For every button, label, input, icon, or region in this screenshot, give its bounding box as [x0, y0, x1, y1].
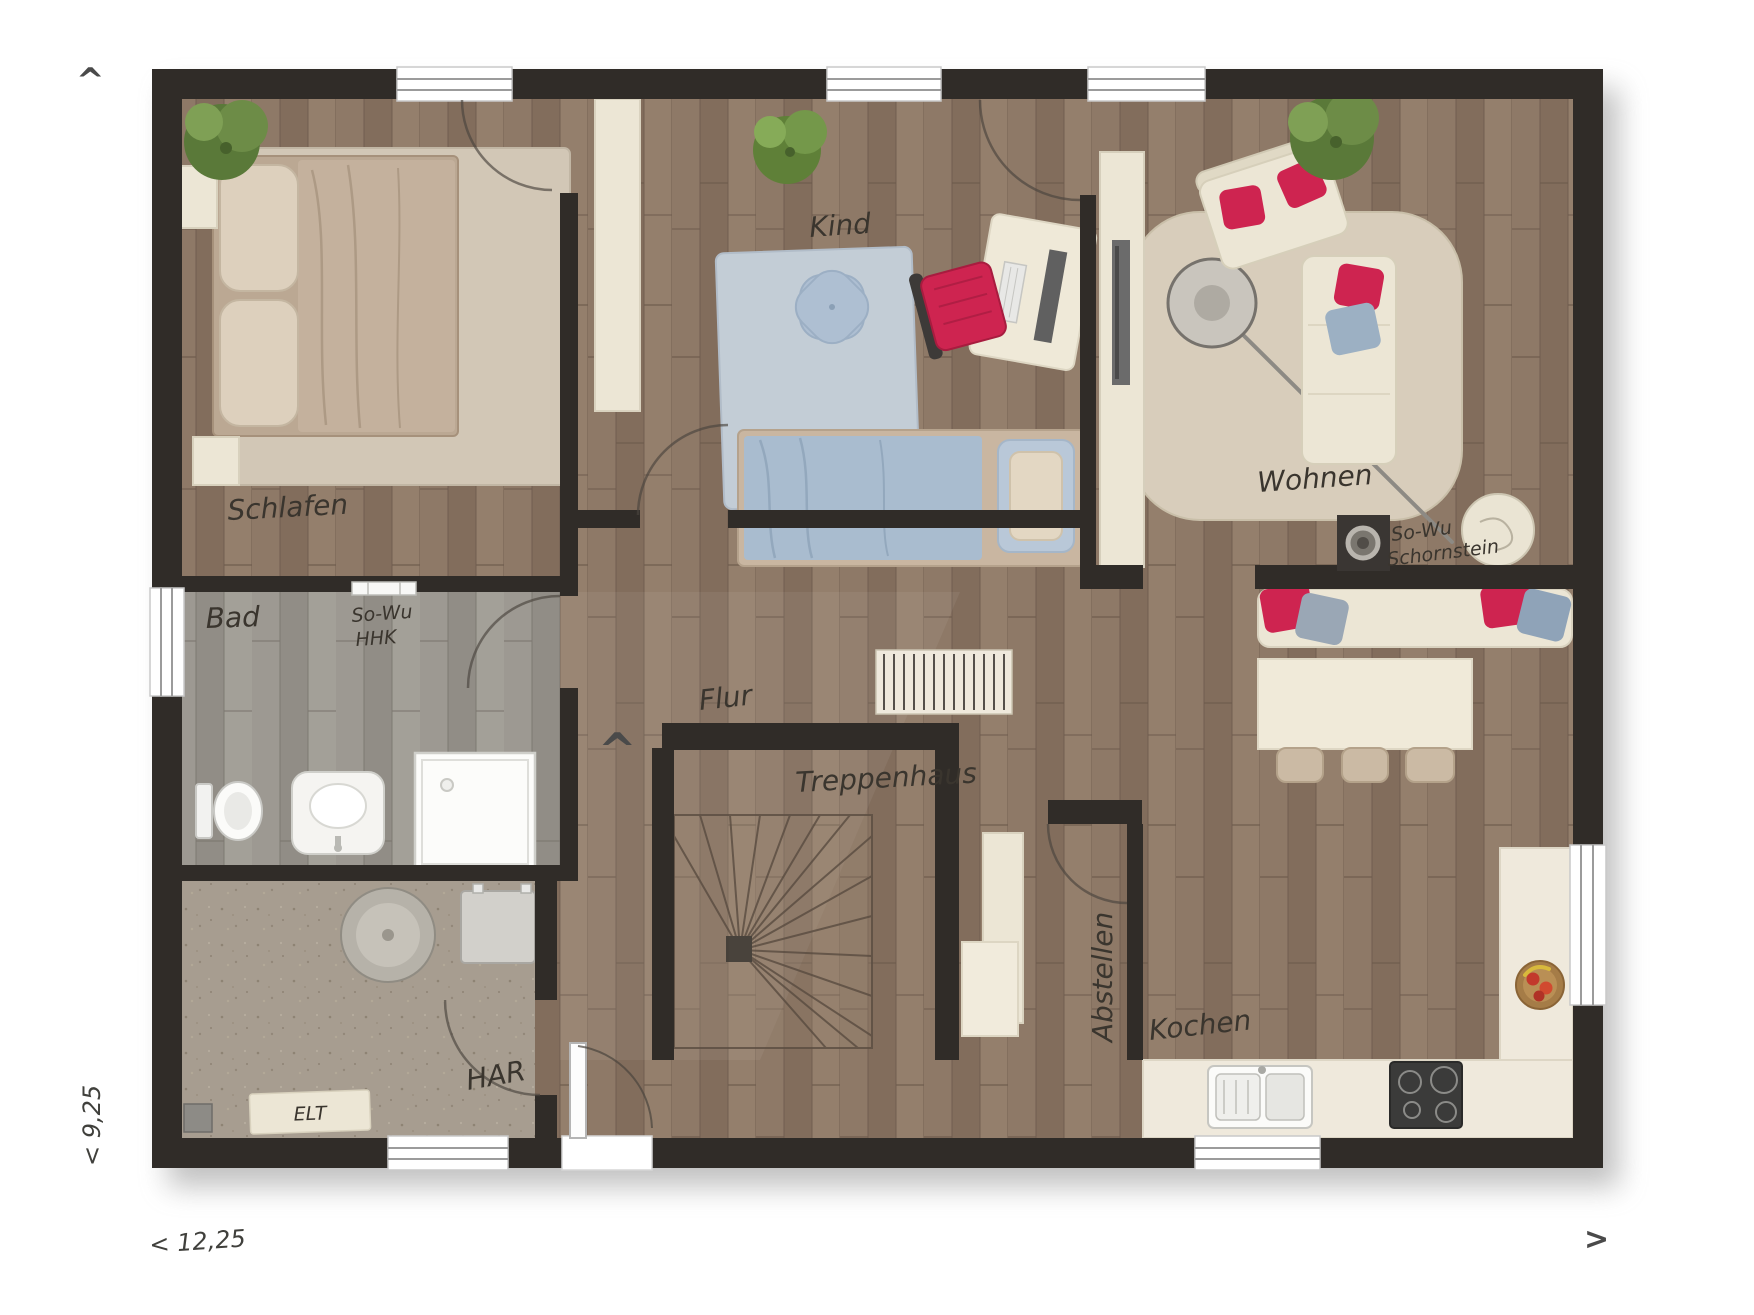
chimney [1337, 515, 1390, 571]
wall-half-dining-a [1080, 565, 1143, 589]
washing-machine [461, 884, 535, 963]
tv [1112, 240, 1130, 385]
window-top-schlafen [397, 67, 512, 101]
dining-table [1258, 659, 1472, 749]
stair-newel [726, 936, 752, 962]
exterior-wall-bottom [152, 1138, 1603, 1168]
label-so-wu-bad-1: So-Wu [351, 601, 413, 627]
kids-wardrobe [595, 99, 640, 411]
window-left-bad [150, 588, 184, 696]
corner-post [184, 1104, 212, 1132]
door-leaf [570, 1043, 586, 1138]
wall-stair-top [662, 723, 955, 750]
room-label-abstellen: Abstellen [1086, 912, 1119, 1044]
wall-bad-har [182, 865, 560, 881]
wall-half-dining-b [1255, 565, 1573, 589]
window-bottom-har [388, 1136, 508, 1170]
room-label-schlafen: Schlafen [227, 488, 349, 527]
towel-radiator [352, 582, 416, 595]
stairs [674, 815, 872, 1048]
water-tank [341, 888, 435, 982]
dimension-width: < 12,25 [148, 1224, 246, 1259]
toilet [196, 782, 262, 840]
window-top-wohnen [1088, 67, 1205, 101]
kitchen-sink [1208, 1066, 1312, 1128]
dining-stools [1277, 748, 1454, 782]
floor-plan-canvas: Schlafen Kind Wohnen Bad Flur Treppenhau… [0, 0, 1754, 1315]
nightstand [193, 437, 239, 485]
double-bed [213, 156, 458, 436]
stair-direction-arrow: ^ [598, 723, 637, 777]
window-right-kochen [1570, 845, 1606, 1005]
room-label-flur: Flur [697, 678, 755, 717]
wall-kind-wohnen [1080, 195, 1096, 570]
label-so-wu-bad-2: HHK [355, 626, 399, 651]
wall-schlafen-right [560, 193, 578, 596]
sofa [1302, 256, 1396, 464]
tv-sideboard [1100, 152, 1144, 567]
east-arrow: > [1584, 1222, 1609, 1257]
wall-abstellen-top [1048, 800, 1142, 824]
dimension-depth: < 9,25 [78, 1085, 106, 1166]
room-label-kind: Kind [808, 207, 872, 244]
wall-kind-bottom-b [728, 510, 1080, 528]
fruit-bowl [1516, 961, 1564, 1009]
label-elt: ELT [293, 1102, 328, 1125]
room-label-bad: Bad [205, 600, 260, 635]
wall-stair-left [652, 748, 674, 1060]
wall-kind-bottom-a [578, 510, 640, 528]
shower [415, 753, 535, 871]
kitchen-counter-right [1500, 848, 1573, 1060]
elt-plate: ELT [249, 1090, 370, 1134]
window-top-kind [827, 67, 941, 101]
wall-bad-right [560, 688, 578, 881]
cooktop [1390, 1062, 1462, 1128]
wall-har-right-b [535, 1095, 557, 1138]
bath-sink [292, 772, 384, 854]
wall-har-right-a [535, 881, 557, 1000]
north-arrow: ^ [76, 61, 105, 101]
wall-abstellen-right [1127, 824, 1143, 1060]
dining-bench [1258, 581, 1573, 647]
window-bottom-kochen [1195, 1136, 1320, 1170]
kids-bed [738, 430, 1085, 566]
stair-railing [876, 650, 1012, 714]
